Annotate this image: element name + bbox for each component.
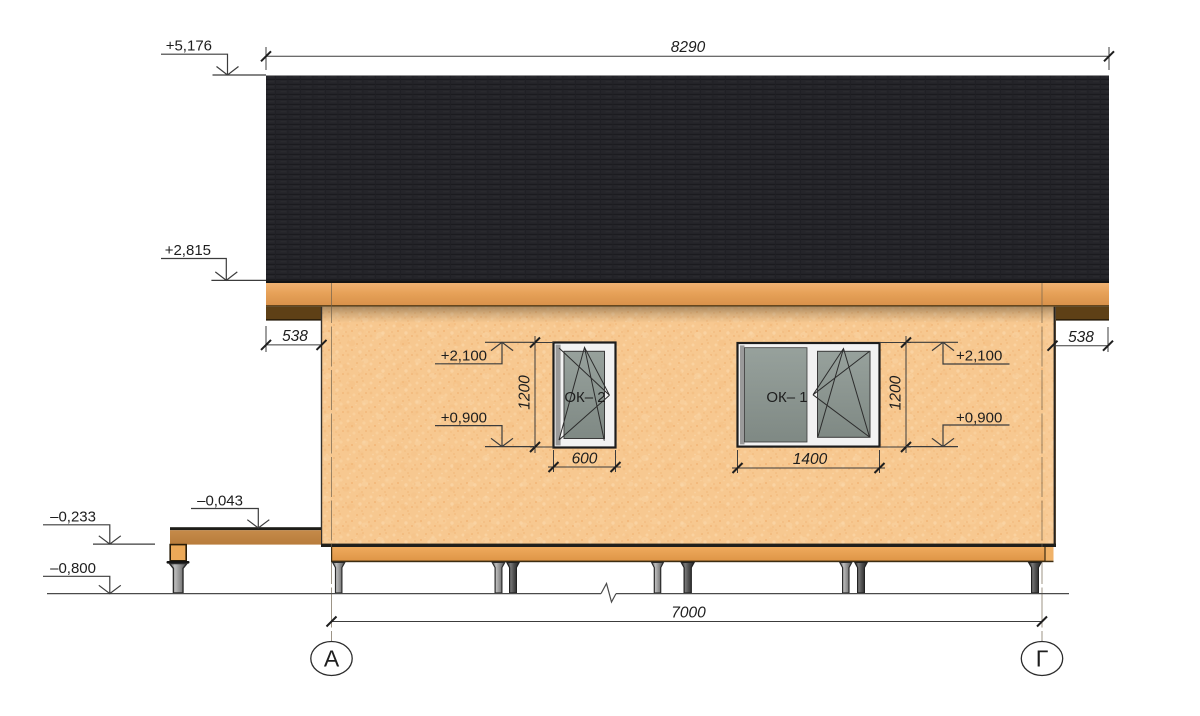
svg-text:538: 538 [282,328,308,345]
svg-text:+2,100: +2,100 [441,348,487,365]
svg-text:1400: 1400 [793,451,828,468]
svg-text:+0,900: +0,900 [956,410,1002,427]
svg-text:8290: 8290 [671,39,706,56]
svg-text:538: 538 [1068,329,1094,346]
svg-text:+2,815: +2,815 [165,242,211,259]
svg-text:+2,100: +2,100 [956,348,1002,365]
svg-text:1200: 1200 [517,375,534,410]
svg-text:+0,900: +0,900 [441,410,487,427]
svg-text:А: А [324,646,340,672]
svg-text:–0,800: –0,800 [50,560,96,577]
svg-text:7000: 7000 [671,605,706,622]
svg-text:–0,233: –0,233 [50,509,96,526]
svg-text:+5,176: +5,176 [166,38,212,55]
svg-text:1200: 1200 [888,375,905,410]
svg-text:–0,043: –0,043 [197,493,243,510]
svg-text:ОК– 1: ОК– 1 [766,389,807,406]
svg-text:ОК– 2: ОК– 2 [564,389,605,406]
svg-text:Г: Г [1036,646,1049,672]
svg-text:600: 600 [572,451,598,468]
